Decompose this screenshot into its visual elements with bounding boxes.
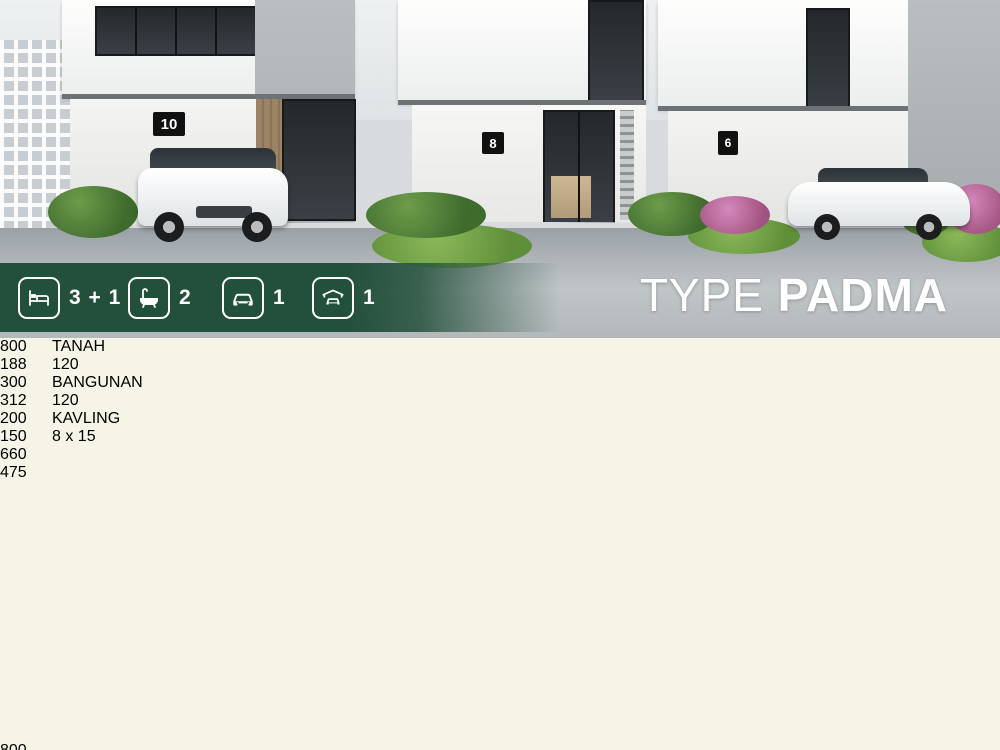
garage-count: 1 xyxy=(273,286,286,310)
type-label: TYPE xyxy=(640,269,778,321)
house-left-window-band xyxy=(95,6,259,56)
sedan-white xyxy=(788,168,970,246)
house-number-middle: 8 xyxy=(489,136,496,151)
info-kavling: KAVLING 8 x 15 xyxy=(52,410,308,446)
bangunan-value: 120 xyxy=(52,392,308,410)
hedge-2 xyxy=(366,192,486,238)
info-bangunan: BANGUNAN 120 xyxy=(52,374,308,410)
house-middle-window-strip xyxy=(588,0,644,104)
plan1-top-dim-3: 312 xyxy=(0,392,27,409)
bedrooms-count: 3 + 1 xyxy=(69,286,121,310)
bath-icon xyxy=(128,277,170,319)
house-middle-glass-door xyxy=(543,110,615,226)
plan2-total-width: 800 xyxy=(0,742,27,750)
house-number-plate-middle: 8 xyxy=(482,132,504,154)
plan1-left-dim-2: 150 xyxy=(0,428,27,445)
tanah-value: 120 xyxy=(52,356,308,374)
spec-bathrooms: 2 xyxy=(128,277,192,319)
house-number-plate-left: 10 xyxy=(153,112,185,136)
bathrooms-count: 2 xyxy=(179,286,192,310)
house-number-left: 10 xyxy=(161,116,178,133)
spec-section: TANAH 120 BANGUNAN 120 KAVLING 8 x 15 80… xyxy=(0,338,1000,750)
car-icon xyxy=(222,277,264,319)
house-right-upper xyxy=(658,0,908,108)
plan1-left-dim-3: 660 xyxy=(0,446,27,463)
spec-garage: 1 xyxy=(222,277,286,319)
carport-icon xyxy=(312,277,354,319)
house-number-plate-right: 6 xyxy=(718,131,738,155)
hero-photo: 10 8 6 xyxy=(0,0,1000,338)
spec-banner: 3 + 1 2 1 xyxy=(0,263,560,332)
info-panel: TANAH 120 BANGUNAN 120 KAVLING 8 x 15 xyxy=(52,338,308,750)
plan1-left-dim-1: 200 xyxy=(0,410,27,427)
spec-bedrooms: 3 + 1 xyxy=(18,277,121,319)
house-left-door-glass xyxy=(282,99,356,221)
spec-carport: 1 xyxy=(312,277,376,319)
tanah-label: TANAH xyxy=(52,338,308,356)
flower-shrub-1 xyxy=(700,196,770,234)
house-right-window-strip xyxy=(806,8,850,116)
kavling-label: KAVLING xyxy=(52,410,308,428)
hedge-1 xyxy=(48,186,138,238)
house-number-right: 6 xyxy=(725,136,732,150)
flyer-canvas: 10 8 6 xyxy=(0,0,1000,750)
suv-white xyxy=(138,148,288,248)
bed-icon xyxy=(18,277,60,319)
plan1-total-width: 800 xyxy=(0,338,27,355)
kavling-value: 8 x 15 xyxy=(52,428,308,446)
carport-count: 1 xyxy=(363,286,376,310)
bangunan-label: BANGUNAN xyxy=(52,374,308,392)
info-tanah: TANAH 120 xyxy=(52,338,308,374)
plan1-top-dim-1: 188 xyxy=(0,356,27,373)
type-title: TYPE PADMA xyxy=(640,268,948,322)
plan1-top-dim-2: 300 xyxy=(0,374,27,391)
plan1-left-dim-4: 475 xyxy=(0,464,27,481)
type-name: PADMA xyxy=(778,269,948,321)
